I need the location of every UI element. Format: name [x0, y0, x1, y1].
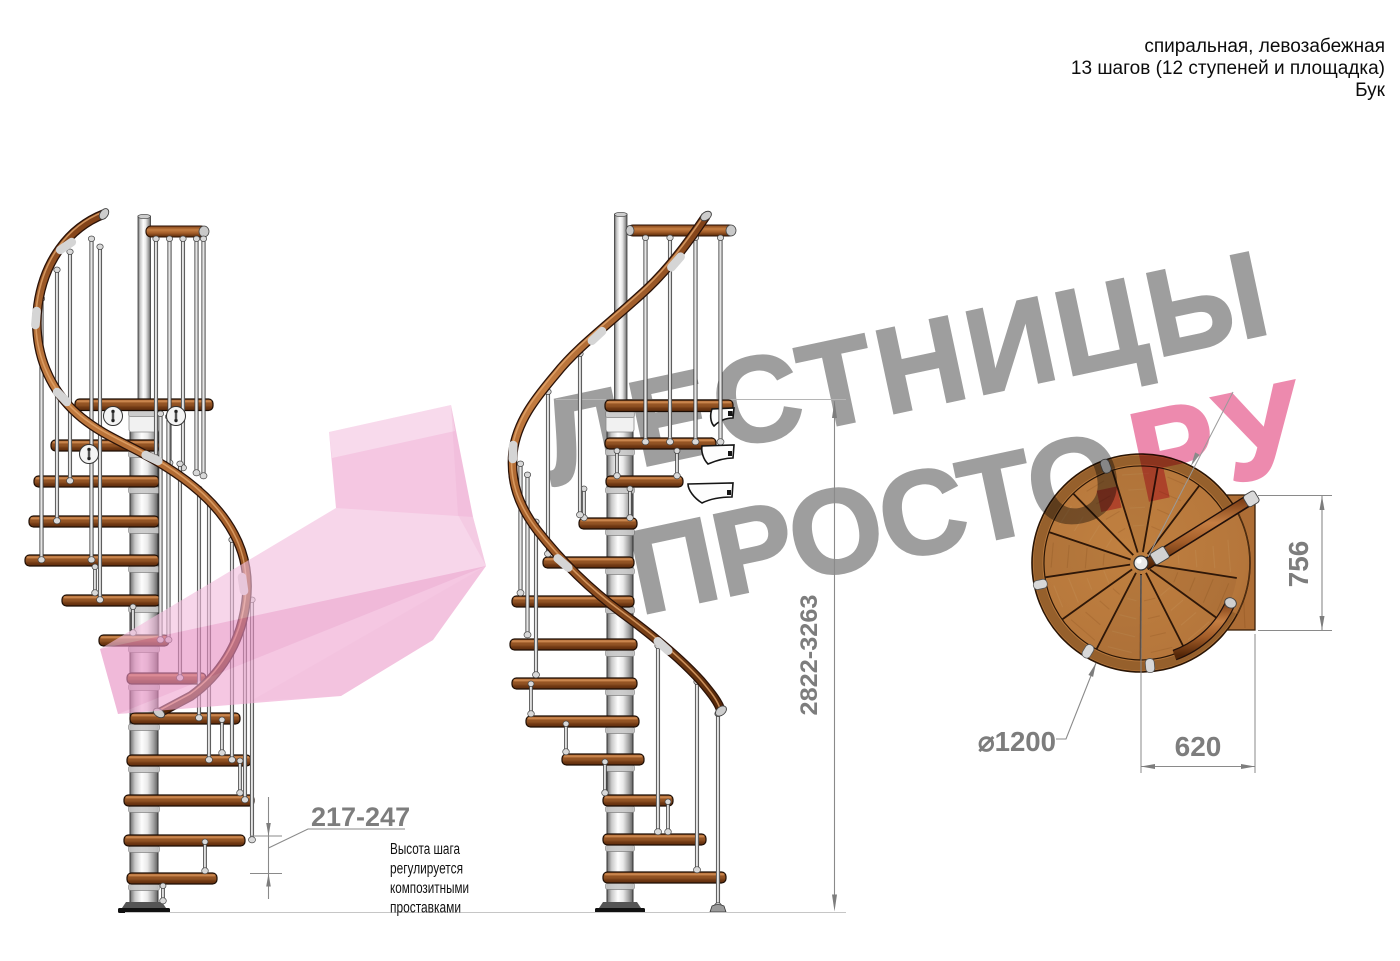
svg-text:Бук: Бук — [1355, 80, 1386, 101]
svg-text:регулируется: регулируется — [390, 861, 463, 878]
svg-text:⌀1200: ⌀1200 — [978, 726, 1056, 757]
svg-text:Высота шага: Высота шага — [390, 841, 460, 858]
svg-text:756: 756 — [1283, 541, 1314, 588]
svg-text:217-247: 217-247 — [311, 802, 410, 832]
svg-text:композитными: композитными — [390, 880, 469, 897]
svg-text:2822-3263: 2822-3263 — [796, 595, 823, 716]
svg-text:проставками: проставками — [390, 900, 461, 917]
svg-text:13 шагов (12 ступеней и площад: 13 шагов (12 ступеней и площадка) — [1071, 58, 1385, 79]
svg-text:спиральная, левозабежная: спиральная, левозабежная — [1144, 36, 1385, 57]
svg-text:620: 620 — [1175, 731, 1222, 762]
